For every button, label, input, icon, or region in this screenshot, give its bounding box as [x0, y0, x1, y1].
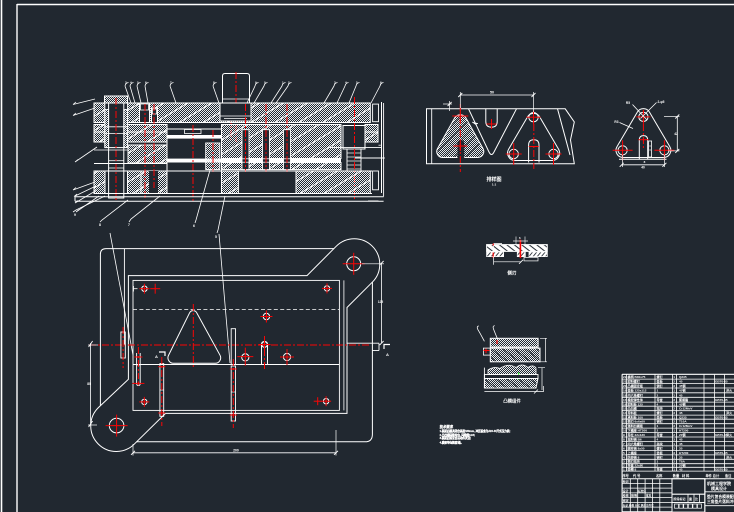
svg-text:45: 45: [679, 380, 683, 384]
svg-text:内六角螺钉: 内六角螺钉: [628, 441, 644, 446]
svg-text:20: 20: [623, 384, 627, 388]
svg-text:4.模架导向精度Ⅰ级。: 4.模架导向精度Ⅰ级。: [440, 440, 464, 444]
svg-text:GB70-85: GB70-85: [715, 398, 728, 402]
svg-text:2: 2: [657, 429, 659, 433]
svg-text:挡块: 挡块: [657, 406, 664, 411]
svg-text:6: 6: [193, 224, 195, 228]
svg-text:3: 3: [673, 424, 675, 428]
svg-text:淬火: 淬火: [726, 410, 733, 415]
svg-text:数量: 数量: [672, 473, 680, 478]
svg-text:垫板: 垫板: [657, 414, 664, 419]
svg-text:审定: 审定: [623, 497, 629, 502]
svg-text:1: 1: [623, 467, 625, 471]
svg-text:12: 12: [623, 420, 627, 424]
svg-text:R3: R3: [614, 120, 618, 124]
svg-text:1: 1: [673, 442, 675, 446]
svg-text:45: 45: [679, 467, 683, 471]
svg-text:内六角螺钉: 内六角螺钉: [628, 392, 644, 397]
svg-text:15: 15: [623, 407, 627, 411]
svg-text:1: 1: [673, 455, 675, 459]
svg-text:销钉: 销钉: [657, 419, 664, 424]
svg-text:垫板 125x112: 垫板 125x112: [628, 388, 647, 393]
svg-text:设计: 设计: [623, 488, 629, 493]
svg-text:标记 处数 分区 更改文件号: 标记 处数 分区 更改文件号: [622, 503, 654, 507]
svg-text:代 号: 代 号: [632, 473, 641, 478]
svg-text:导套: 导套: [657, 432, 664, 437]
svg-text:名称: 名称: [656, 473, 663, 478]
svg-text:GB70-85: GB70-85: [715, 451, 728, 455]
svg-text:21: 21: [623, 380, 627, 384]
svg-text:1: 1: [673, 375, 675, 379]
svg-text:侧刃 6x6x60: 侧刃 6x6x60: [628, 419, 646, 424]
svg-text:淬火: 淬火: [726, 454, 733, 459]
svg-text:校核: 校核: [623, 493, 629, 498]
svg-text:防转销 6: 防转销 6: [628, 454, 640, 459]
svg-text:标准化: 标准化: [637, 489, 646, 493]
svg-text:5: 5: [215, 235, 217, 239]
svg-text:35: 35: [679, 455, 683, 459]
svg-text:80: 80: [87, 382, 91, 386]
svg-text:1:1: 1:1: [492, 183, 497, 187]
svg-text:42: 42: [674, 132, 678, 136]
svg-text:备注: 备注: [724, 473, 732, 478]
svg-text:导套: 导套: [657, 466, 664, 471]
svg-text:重: 重: [689, 496, 692, 501]
svg-text:6: 6: [623, 446, 625, 450]
svg-text:GB70-85: GB70-85: [715, 415, 728, 419]
svg-text:模具设计: 模具设计: [711, 485, 727, 491]
svg-text:1: 1: [673, 467, 675, 471]
svg-text:5: 5: [623, 451, 625, 455]
svg-text:9: 9: [623, 433, 625, 437]
svg-text:7: 7: [623, 442, 625, 446]
svg-text:200: 200: [233, 449, 239, 453]
svg-text:承料板 100: 承料板 100: [628, 414, 644, 419]
svg-text:挡料销 B6: 挡料销 B6: [628, 436, 642, 441]
svg-text:技术要求: 技术要求: [440, 424, 454, 429]
svg-text:2: 2: [657, 393, 659, 397]
svg-text:35: 35: [679, 446, 683, 450]
svg-text:销钉: 销钉: [657, 454, 664, 459]
svg-text:3.装配后保证各运动件灵活;: 3.装配后保证各运动件灵活;: [440, 436, 472, 440]
svg-text:凸模固定板: 凸模固定板: [628, 383, 644, 388]
svg-text:凸模组件: 凸模组件: [503, 398, 521, 405]
svg-text:8: 8: [99, 223, 101, 227]
svg-text:GB70-85: GB70-85: [715, 467, 728, 471]
svg-text:侧刃: 侧刃: [506, 270, 517, 277]
svg-text:4: 4: [657, 437, 659, 441]
svg-text:1.装配后模具闭合高度160mm, 冲压设备为J23-40开: 1.装配后模具闭合高度160mm, 冲压设备为J23-40开式压力机;: [440, 429, 511, 433]
svg-text:1: 1: [673, 389, 675, 393]
svg-text:导套: 导套: [657, 397, 664, 402]
svg-text:淬火: 淬火: [726, 388, 733, 393]
svg-text:张明: 张明: [631, 493, 637, 498]
svg-text:比: 比: [695, 496, 698, 501]
svg-text:垫片复合模装配图: 垫片复合模装配图: [707, 494, 734, 499]
svg-text:2: 2: [673, 407, 675, 411]
svg-text:45钢: 45钢: [679, 383, 686, 388]
svg-text:序号: 序号: [622, 473, 630, 478]
svg-text:垫圈 8: 垫圈 8: [628, 466, 637, 471]
svg-text:上模座: 上模座: [628, 450, 638, 455]
svg-text:卸料螺钉: 卸料螺钉: [628, 379, 641, 384]
svg-text:销钉: 销钉: [657, 383, 664, 388]
svg-text:批准: 批准: [646, 494, 652, 498]
svg-text:HT200: HT200: [679, 429, 689, 433]
svg-text:标记: 标记: [622, 479, 629, 484]
svg-text:HT200: HT200: [679, 451, 689, 455]
svg-text:45: 45: [679, 393, 683, 397]
svg-text:R5: R5: [626, 101, 630, 105]
svg-text:45钢: 45钢: [679, 388, 686, 393]
svg-text:10: 10: [623, 429, 627, 433]
svg-text:橡胶弹性体: 橡胶弹性体: [627, 397, 644, 402]
svg-text:9: 9: [74, 213, 76, 217]
svg-text:50: 50: [490, 91, 494, 95]
svg-text:螺钉: 螺钉: [657, 410, 664, 415]
svg-text:1: 1: [657, 424, 659, 428]
svg-text:材 料: 材 料: [682, 473, 690, 478]
svg-text:A: A: [155, 354, 158, 359]
svg-text:落料凹模板: 落料凹模板: [628, 423, 644, 428]
svg-text:40: 40: [641, 166, 645, 170]
svg-text:2: 2: [673, 393, 675, 397]
svg-text:导柱 22x130: 导柱 22x130: [628, 432, 646, 437]
svg-text:三角垫片落料冲孔: 三角垫片落料冲孔: [707, 499, 734, 504]
svg-text:18: 18: [623, 393, 627, 397]
svg-text:下模座 HT200: 下模座 HT200: [628, 428, 648, 433]
svg-text:挡块: 挡块: [657, 441, 664, 446]
svg-text:3: 3: [673, 398, 675, 402]
svg-text:2: 2: [673, 420, 675, 424]
svg-text:单件 总计: 单件 总计: [706, 473, 720, 478]
svg-text:45钢: 45钢: [679, 401, 686, 406]
svg-text:聚氨酯: 聚氨酯: [678, 397, 689, 402]
svg-text:3: 3: [673, 451, 675, 455]
svg-text:模柄 B30x75: 模柄 B30x75: [628, 374, 646, 379]
svg-text:螺钉: 螺钉: [657, 445, 664, 450]
svg-text:圆柱销 8x50: 圆柱销 8x50: [628, 445, 645, 450]
svg-text:1: 1: [673, 429, 675, 433]
svg-text:45: 45: [679, 442, 683, 446]
svg-text:Cr12MoV: Cr12MoV: [679, 424, 693, 428]
svg-text:2-φ5: 2-φ5: [658, 100, 665, 104]
svg-text:3: 3: [673, 437, 675, 441]
svg-text:Q235: Q235: [679, 375, 687, 379]
svg-text:T10A: T10A: [679, 420, 687, 424]
svg-text:A: A: [386, 352, 389, 357]
svg-text:20钢: 20钢: [679, 432, 686, 437]
svg-text:垫板: 垫板: [657, 379, 664, 384]
svg-text:4: 4: [623, 455, 625, 459]
svg-text:19: 19: [623, 389, 627, 393]
svg-text:3: 3: [673, 384, 675, 388]
svg-text:17: 17: [623, 398, 627, 402]
svg-text:2: 2: [673, 446, 675, 450]
svg-text:螺钉: 螺钉: [657, 374, 664, 379]
svg-text:7: 7: [128, 223, 130, 227]
svg-text:卸料板 125: 卸料板 125: [628, 401, 644, 406]
svg-text:垫板: 垫板: [657, 450, 664, 455]
svg-text:2: 2: [673, 380, 675, 384]
svg-text:凸凹模: 凸凹模: [628, 406, 638, 411]
svg-text:阶段标记: 阶段标记: [674, 496, 686, 501]
svg-text:2: 2: [673, 433, 675, 437]
svg-text:1: 1: [657, 389, 659, 393]
svg-text:导料板: 导料板: [628, 410, 638, 415]
svg-text:125: 125: [378, 300, 384, 304]
svg-text:11: 11: [623, 424, 627, 428]
svg-text:45: 45: [679, 437, 683, 441]
svg-text:8: 8: [623, 437, 625, 441]
svg-text:Cr12MoV: Cr12MoV: [679, 407, 693, 411]
svg-text:GB70-85: GB70-85: [715, 380, 728, 384]
svg-text:22: 22: [623, 375, 627, 379]
svg-text:淬火: 淬火: [726, 432, 733, 437]
